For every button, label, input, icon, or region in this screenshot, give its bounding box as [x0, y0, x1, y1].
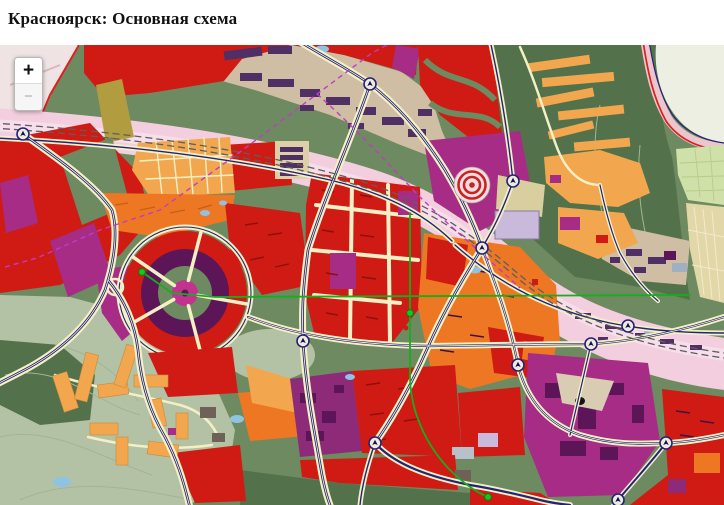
- stadium-icon: [454, 167, 490, 203]
- page-header: Красноярск: Основная схема: [0, 0, 724, 45]
- map-container: + −: [0, 45, 724, 505]
- map-canvas[interactable]: [0, 45, 724, 505]
- zoom-out-button[interactable]: −: [15, 84, 42, 110]
- red-point-marker: [404, 326, 409, 331]
- zoom-in-button[interactable]: +: [15, 58, 42, 84]
- page-title: Красноярск: Основная схема: [8, 9, 724, 29]
- red-square-marker: [532, 279, 538, 285]
- zoom-control: + −: [14, 57, 43, 111]
